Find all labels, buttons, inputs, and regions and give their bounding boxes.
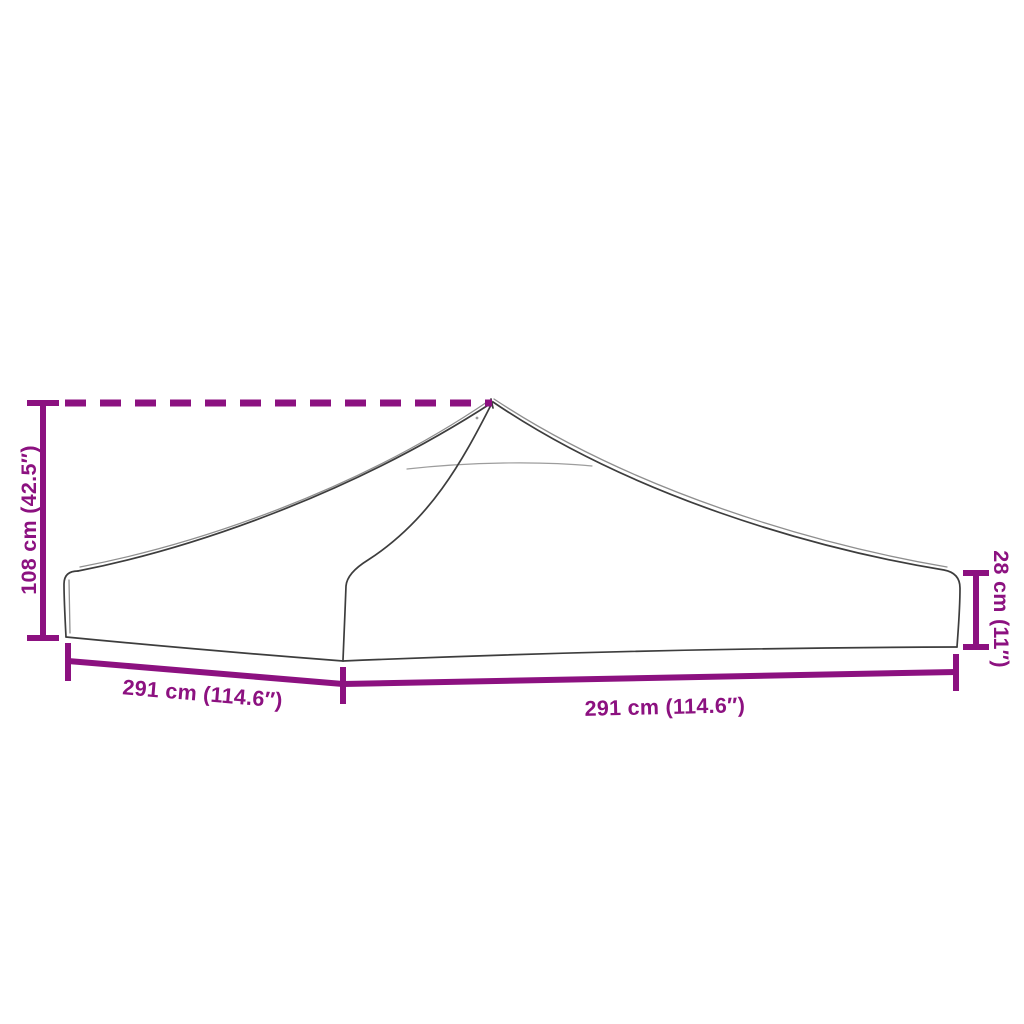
right-width-label: 291 cm (114.6″) [584,693,745,721]
canopy-secondary-lines [69,399,947,633]
left-corner-inner-edge [69,580,70,633]
right-width-dimension-line [343,672,956,684]
front-hip-ridge [343,403,492,660]
left-width-dimension-line [68,661,343,684]
dimension-lines [27,403,989,704]
valance-height-label: 28 cm (11″) [989,550,1013,668]
left-corner-edge [64,571,78,637]
right-hip-inner-line [494,399,947,567]
left-hip-ridge [78,402,493,571]
left-width-label: 291 cm (114.6″) [122,675,284,712]
peak-seam-dot [476,417,479,420]
right-hip-ridge-and-corner [493,402,960,647]
roof-seam-line [407,463,592,469]
canopy-seam [407,463,592,469]
left-hip-inner-line [80,400,490,567]
diagram-canvas: 108 cm (42.5″) 28 cm (11″) 291 cm (114.6… [0,0,1024,1024]
valance-bottom-edge-right [343,647,957,661]
canopy-dimension-diagram: 108 cm (42.5″) 28 cm (11″) 291 cm (114.6… [0,0,1024,1024]
valance-bottom-edge-left [66,637,343,661]
canopy-outline [64,399,960,661]
peak-height-label: 108 cm (42.5″) [17,445,41,595]
